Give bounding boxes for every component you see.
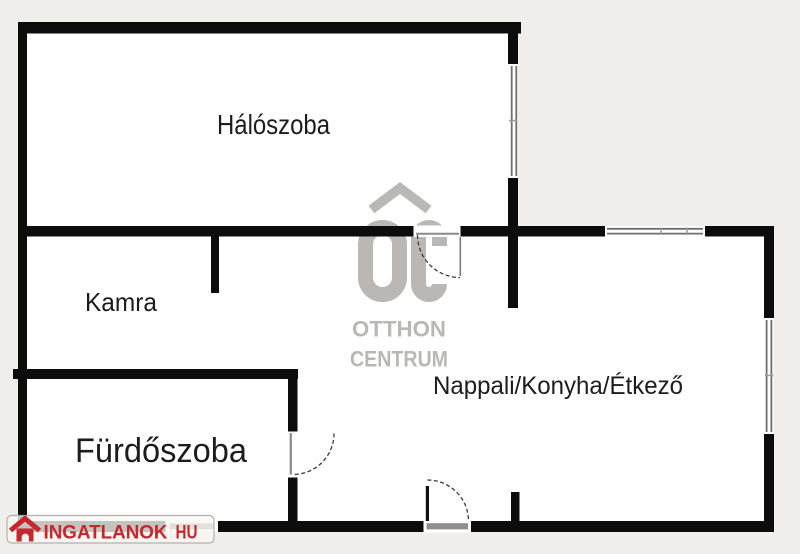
living-label: Nappali/Konyha/Étkező	[433, 371, 683, 400]
floor-plan: OTTHON CENTRUM	[0, 0, 800, 554]
window-gap	[605, 226, 705, 237]
window-living-right	[764, 318, 774, 434]
watermark-letter-c-notch	[430, 246, 451, 284]
wall-bedroom-right-upper	[508, 22, 518, 64]
house-door	[22, 534, 29, 542]
window-bedroom-right	[508, 64, 518, 178]
watermark-line2: CENTRUM	[350, 347, 448, 372]
wall-left	[18, 22, 27, 532]
wall-bottom-2	[218, 521, 424, 532]
wall-top	[18, 22, 521, 34]
door-threshold	[427, 523, 469, 529]
watermark-line1: OTTHON	[352, 317, 446, 342]
wall-bottom-3	[471, 521, 775, 532]
badge-separator: :	[169, 523, 175, 542]
floor-plan-page: OTTHON CENTRUM	[0, 0, 800, 554]
badge-tld-text: HU	[176, 523, 198, 544]
wall-mid-2	[461, 226, 608, 237]
window-living-top	[605, 226, 705, 237]
wall-mid-1	[18, 226, 414, 237]
wall-bathroom-right-upper	[288, 369, 298, 432]
bedroom-label: Hálószoba	[217, 109, 330, 140]
wall-living-right-upper	[764, 226, 774, 318]
wall-bottom-stub	[511, 492, 520, 521]
bathroom-label: Fürdőszoba	[75, 432, 247, 470]
wall-bathroom-top	[13, 369, 298, 379]
wall-mid-3	[703, 226, 774, 237]
wall-bedroom-right-lower	[508, 178, 518, 308]
pantry-label: Kamra	[85, 287, 158, 317]
badge-brand-text: INGATLANOK	[44, 523, 168, 544]
wall-living-right-lower	[764, 434, 774, 532]
wall-pantry-stub	[211, 236, 219, 293]
door-opening	[288, 432, 299, 478]
ingatlanok-badge: INGATLANOK : HU	[7, 516, 214, 544]
door-opening	[414, 226, 461, 238]
